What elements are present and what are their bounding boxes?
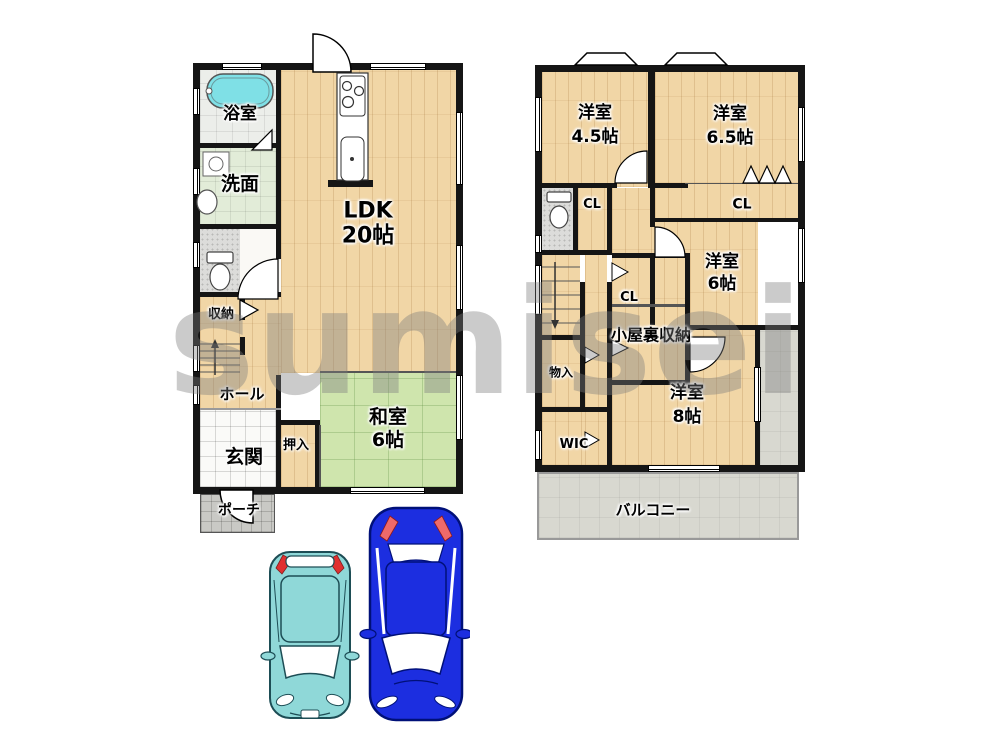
- wall: [573, 188, 578, 253]
- parking-cars: [258, 498, 470, 728]
- wall: [200, 143, 276, 148]
- room-toilet2: [542, 188, 573, 253]
- room65-label: 洋室: [713, 106, 747, 124]
- room45-label: 洋室: [578, 105, 612, 123]
- sedan-car-icon: [360, 508, 470, 720]
- window: [193, 88, 200, 115]
- room45-size-label: 4.5帖: [571, 129, 618, 147]
- wall: [240, 337, 245, 355]
- sliding-partition: [319, 425, 321, 487]
- washroom-label: 洗面: [221, 175, 259, 195]
- wall: [542, 335, 585, 340]
- entrance-step: [200, 408, 281, 410]
- dormer-window-icon: [575, 53, 727, 65]
- window: [350, 487, 425, 494]
- room8-label: 洋室: [670, 385, 704, 403]
- wall: [200, 224, 276, 229]
- room6-label: 洋室: [705, 254, 739, 272]
- hall-label: ホール: [219, 387, 264, 403]
- porch-label: ポーチ: [218, 504, 260, 519]
- stairs2-area: [542, 253, 580, 335]
- monoire-label: 物入: [549, 367, 573, 380]
- bath-label: 浴室: [223, 106, 257, 124]
- wall: [607, 188, 612, 253]
- closet1-label: CL: [583, 198, 601, 212]
- wall: [650, 257, 655, 325]
- room8-size-label: 8帖: [673, 409, 702, 427]
- wall: [690, 325, 798, 330]
- closet-wide: [655, 183, 798, 222]
- wall: [240, 295, 245, 320]
- window: [754, 367, 761, 422]
- wall: [535, 65, 805, 72]
- second-floor-plan: 洋室 4.5帖 洋室 6.5帖 CL CL CL 洋室 6帖 小屋裏収納 物入 …: [535, 52, 805, 544]
- wall: [648, 72, 655, 183]
- toilet-vestibule: [240, 227, 281, 300]
- balcony-label: バルコニー: [616, 503, 691, 519]
- window: [193, 242, 200, 268]
- first-floor-plan: 浴室 洗面 収納 ホール 玄関 押入 ポーチ LDK 20帖 和室 6帖: [193, 63, 463, 533]
- compact-car-icon: [261, 552, 359, 718]
- storage-label: 収納: [208, 308, 234, 322]
- balcony-sliding-door: [648, 465, 720, 472]
- wall: [578, 250, 612, 255]
- wall: [542, 183, 617, 188]
- room-toilet: [200, 227, 240, 295]
- window: [535, 430, 542, 460]
- oshiire-label: 押入: [283, 439, 309, 453]
- room6-size-label: 6帖: [708, 276, 737, 294]
- wall: [607, 282, 612, 465]
- washitsu-size-label: 6帖: [372, 431, 404, 451]
- room65-size-label: 6.5帖: [706, 130, 753, 148]
- window: [193, 168, 200, 195]
- wall: [328, 180, 373, 187]
- wall: [542, 407, 607, 412]
- corridor: [585, 253, 607, 465]
- wall: [193, 63, 200, 494]
- ldk-size-label: 20帖: [342, 224, 395, 247]
- window: [798, 228, 805, 283]
- attic-label: 小屋裏収納: [611, 328, 691, 345]
- wic-label: WIC: [560, 438, 589, 452]
- window: [456, 112, 463, 185]
- washitsu-label: 和室: [369, 408, 407, 428]
- window: [535, 97, 542, 152]
- wall: [655, 218, 798, 222]
- wall: [685, 253, 690, 385]
- wall: [276, 70, 281, 259]
- entrance-label: 玄関: [225, 448, 263, 468]
- window: [222, 63, 262, 70]
- closet3-label: CL: [620, 291, 638, 305]
- wall: [276, 375, 281, 487]
- window: [370, 63, 426, 70]
- window: [193, 385, 200, 405]
- window: [535, 235, 542, 253]
- roof-area: [760, 325, 798, 472]
- closet-line: [685, 183, 798, 184]
- wall: [612, 253, 690, 258]
- closet2-label: CL: [732, 198, 751, 213]
- window: [535, 265, 542, 315]
- ldk-label: LDK: [343, 199, 392, 222]
- floorplan-canvas: 浴室 洗面 収納 ホール 玄関 押入 ポーチ LDK 20帖 和室 6帖: [0, 0, 1000, 750]
- window: [456, 375, 463, 440]
- window: [456, 245, 463, 310]
- sliding-partition: [320, 371, 456, 373]
- window: [193, 345, 200, 372]
- wall: [580, 282, 585, 412]
- window: [798, 107, 805, 162]
